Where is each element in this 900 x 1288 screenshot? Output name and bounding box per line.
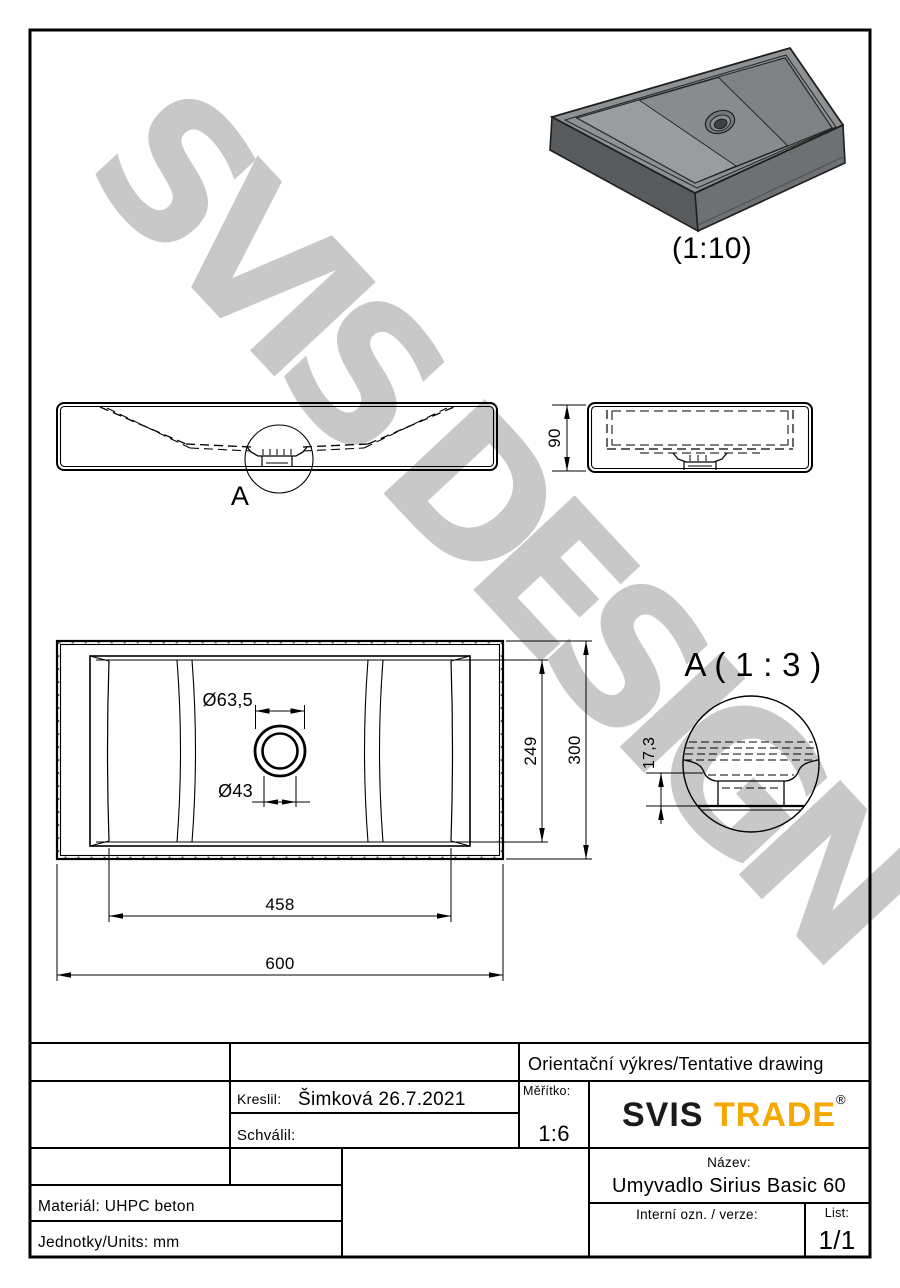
plan-dim-drain-inner: Ø43	[218, 776, 310, 807]
kreslil-value: Šimková 26.7.2021	[298, 1088, 466, 1110]
nazev-value: Umyvadlo Sirius Basic 60	[612, 1175, 846, 1197]
svg-text:600: 600	[265, 954, 294, 973]
svg-text:17,3: 17,3	[641, 737, 658, 769]
front-detail-marker: A	[231, 481, 249, 511]
meritko-value: 1:6	[538, 1121, 569, 1146]
side-drain-recess	[673, 453, 727, 462]
title-block	[30, 1043, 870, 1257]
schvalil-label: Schválil:	[237, 1127, 296, 1144]
tentative-drawing-note: Orientační výkres/Tentative drawing	[528, 1054, 824, 1074]
svg-text:90: 90	[545, 428, 564, 448]
registered-mark: ®	[836, 1092, 846, 1107]
drawing-sheet: SVIS DESIGN (1:10)	[0, 0, 900, 1288]
nazev-label: Název:	[707, 1155, 751, 1170]
iso-scale-label: (1:10)	[672, 232, 752, 265]
kreslil-label: Kreslil:	[237, 1091, 281, 1107]
list-value: 1/1	[818, 1225, 855, 1255]
svg-text:249: 249	[521, 736, 540, 765]
interni-label: Interní ozn. / verze:	[636, 1207, 758, 1222]
plan-dim-outer-length: 600	[57, 864, 503, 981]
iso-view: (1:10)	[550, 48, 845, 265]
material-note: Materiál: UHPC beton	[38, 1198, 195, 1215]
svg-text:300: 300	[565, 735, 584, 764]
trade-logo-text: TRADE	[714, 1096, 836, 1134]
meritko-label: Měřítko:	[523, 1084, 571, 1098]
plan-dim-drain-outer: Ø63,5	[202, 690, 304, 729]
svis-logo-text: SVIS	[622, 1096, 703, 1134]
title-block-text: Orientační výkres/Tentative drawing Kres…	[38, 1054, 856, 1255]
plan-basin-rim	[90, 656, 470, 846]
units-note: Jednotky/Units: mm	[38, 1234, 180, 1251]
detail-title: A ( 1 : 3 )	[684, 646, 821, 683]
svg-text:Ø43: Ø43	[218, 781, 253, 801]
svg-text:458: 458	[265, 895, 294, 914]
list-label: List:	[825, 1206, 849, 1220]
svg-text:Ø63,5: Ø63,5	[202, 690, 253, 710]
plan-drain-inner	[263, 734, 298, 769]
